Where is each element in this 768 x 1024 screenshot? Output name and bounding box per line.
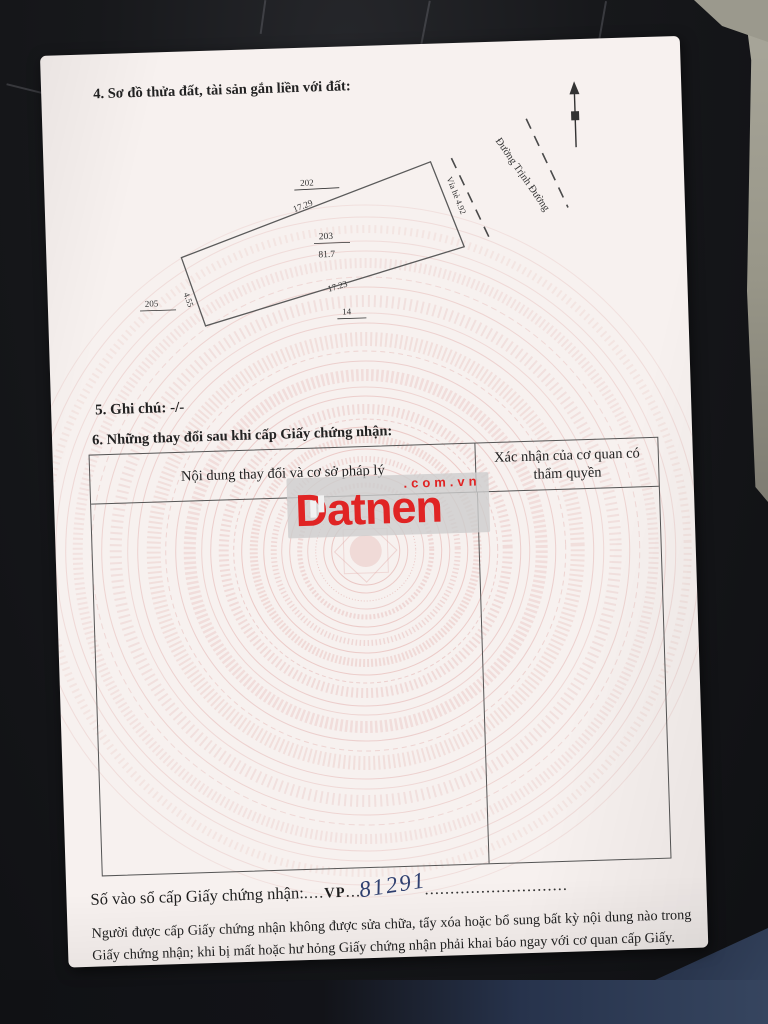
datnen-watermark: .com.vn Datnen [286,472,490,538]
dot-leader: ............................ [424,875,568,898]
fraction-bar [314,242,350,243]
changes-table-body [91,487,670,875]
road-dashed-lines [450,118,569,239]
adjacent-plot-left-label: 205 [145,298,159,308]
fraction-bar [337,318,366,319]
adjacent-plot-bottom-label: 14 [342,306,352,316]
dot-leader: .... [303,882,324,902]
registry-prefix: VP [324,885,346,902]
changes-cell-empty [91,493,489,876]
sidewalk-edge-label: Vỉa hè 4.92 [445,175,469,215]
road-name-label: Đường Trịnh Đường [493,136,552,214]
north-arrow-icon [569,81,581,147]
plot-area: 81.7 [318,250,335,261]
plot-diagram: 202 17.29 203 81.7 17.23 14 205 4.55 Vỉa… [111,77,640,393]
chair-slat-line [260,0,267,34]
registry-label: Số vào sổ cấp Giấy chứng nhận: [90,883,304,909]
edge-bottom-length: 17.23 [326,278,349,294]
edge-top-length: 17.29 [292,197,315,214]
building-icon [310,501,317,518]
certificate-page: 4. Sơ đồ thửa đất, tài sản gắn liền với … [40,36,708,968]
fraction-bar [140,310,176,311]
section5-note: 5. Ghi chú: -/- [95,400,185,420]
parcel-outline [179,161,467,327]
handwritten-registry-number: 81291 [357,867,428,903]
chair-crease-line [6,83,45,95]
floor-strip [738,0,768,502]
certificate-notice: Người được cấp Giấy chứng nhận không đượ… [91,904,692,967]
floor-corner [694,0,768,42]
denim-strip [0,980,768,1024]
authority-cell-empty [477,487,670,863]
col-header-authority: Xác nhận của cơ quan có thẩm quyền [476,438,659,492]
photo-scene: 4. Sơ đồ thửa đất, tài sản gắn liền với … [0,0,768,1024]
adjacent-plot-top-label: 202 [300,177,314,187]
plot-number: 203 [319,232,334,242]
watermark-brand: Datnen [295,485,484,531]
fraction-bar [294,188,339,190]
